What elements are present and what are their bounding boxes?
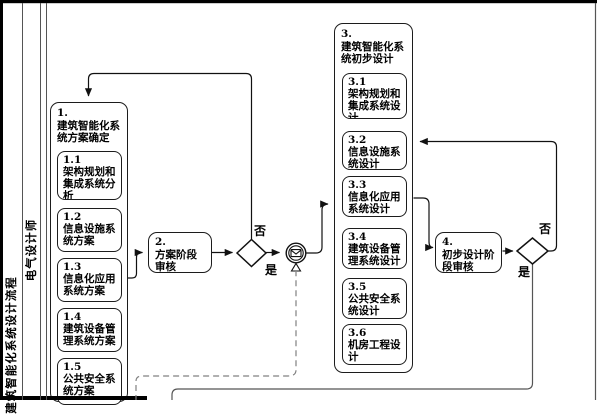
task-1-1: 1.1 架构规划和 集成系统分 析: [57, 151, 122, 200]
task-1-5: 1.5 公共安全系 统方案: [57, 358, 122, 405]
event-inner-circle: [289, 246, 303, 260]
message-icon: [291, 250, 301, 257]
task-1-4: 1.4 建筑设备管 理系统方案: [57, 308, 122, 352]
gateway-1-no-label: 否: [254, 222, 266, 239]
phase-1-group: 1. 建筑智能化系 统方案确定 1.1 架构规划和 集成系统分 析 1.2 信息…: [50, 102, 128, 402]
task-3-6: 3.6 机房工程设 计: [342, 324, 407, 365]
phase-3-group: 3. 建筑智能化系 统初步设计 3.1 架构规划和 集成系统设 计 3.2 信息…: [334, 23, 413, 373]
task-3-5: 3.5 公共安全系 统设计: [342, 278, 407, 319]
gateway-1: [237, 240, 266, 267]
message-flow-open-arrowhead: [292, 264, 301, 272]
pool-top-border: [3, 0, 597, 3]
task-1-2: 1.2 信息设施系 统方案: [57, 208, 122, 252]
review-task-2: 2. 方案阶段 审核: [148, 232, 212, 273]
gateway-2: [517, 238, 548, 264]
message-flow-to-event: [136, 272, 296, 400]
gateway-1-yes-label: 是: [265, 261, 277, 278]
phase-3-title: 3. 建筑智能化系 统初步设计: [335, 24, 412, 66]
lane-label: 电气设计师: [23, 219, 39, 282]
task-3-2: 3.2 信息设施系 统设计: [342, 131, 407, 170]
phase-1-title: 1. 建筑智能化系 统方案确定: [51, 103, 127, 145]
task-3-4: 3.4 建筑设备管 理系统设计: [342, 228, 407, 269]
task-3-1: 3.1 架构规划和 集成系统设 计: [342, 73, 407, 119]
review-task-4: 4. 初步设计阶 段审核: [435, 232, 502, 273]
task-3-3: 3.3 信息化应用 系统设计: [342, 176, 407, 217]
flow-phase1-to-review2: [128, 253, 143, 279]
flow-phase3-to-review4: [414, 198, 434, 248]
message-event: [286, 243, 306, 263]
gateway-2-no-label: 否: [539, 220, 551, 237]
bpmn-diagram: 建筑智能化系统设计流程 电气设计师 1. 建筑智能化系 统方案确定 1.1 架构…: [0, 0, 600, 400]
flow-event-to-phase3: [307, 204, 329, 253]
pool-label: 建筑智能化系统设计流程: [3, 276, 19, 414]
task-1-3: 1.3 信息化应用 系统方案: [57, 258, 122, 302]
gateway-2-yes-label: 是: [518, 263, 530, 280]
event-outer-circle: [286, 243, 306, 263]
